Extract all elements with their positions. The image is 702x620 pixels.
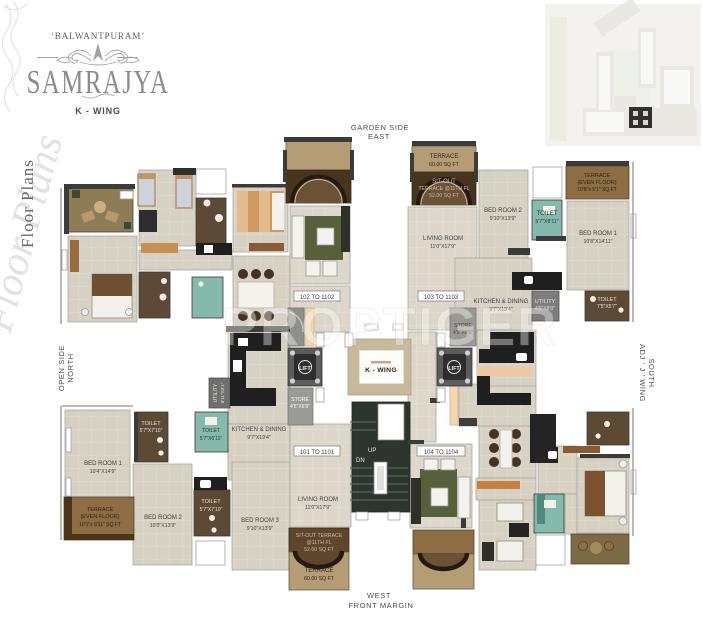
svg-text:9'7"X19'4": 9'7"X19'4": [247, 435, 271, 441]
svg-text:11'0"X17'9": 11'0"X17'9": [430, 244, 456, 250]
svg-text:60.00 SQ FT: 60.00 SQ FT: [429, 162, 460, 168]
svg-text:(EVEN FLOOR): (EVEN FLOOR): [577, 180, 616, 186]
svg-text:(EVEN FLOOR): (EVEN FLOOR): [80, 514, 119, 520]
svg-text:STORE: STORE: [291, 397, 309, 403]
svg-text:K - WING: K - WING: [75, 106, 120, 116]
svg-text:52.00 SQ FT: 52.00 SQ FT: [304, 547, 335, 553]
svg-text:BED ROOM 2: BED ROOM 2: [144, 515, 182, 521]
svg-text:TERRACE: TERRACE: [584, 173, 611, 179]
svg-text:SIT-OUT TERRACE: SIT-OUT TERRACE: [296, 533, 343, 539]
svg-text:TOILET: TOILET: [537, 211, 558, 217]
svg-text:SIT-OUT: SIT-OUT: [432, 179, 456, 185]
svg-text:‘BALWANTPURAM’: ‘BALWANTPURAM’: [51, 31, 145, 41]
svg-text:9'10"X13'9": 9'10"X13'9": [247, 526, 274, 532]
svg-text:UTILITY: UTILITY: [213, 383, 219, 402]
svg-text:52.00 SQ FT: 52.00 SQ FT: [429, 193, 460, 199]
svg-text:TERRACE @11TH FL: TERRACE @11TH FL: [418, 186, 469, 192]
svg-text:11'0"X17'9": 11'0"X17'9": [305, 505, 331, 511]
svg-text:104 TO 1104: 104 TO 1104: [424, 450, 459, 456]
svg-text:FRONT MARGIN: FRONT MARGIN: [349, 601, 414, 610]
svg-text:5'7"X7'10": 5'7"X7'10": [200, 507, 223, 513]
svg-text:SOUTH: SOUTH: [647, 358, 656, 387]
svg-text:K - WING: K - WING: [365, 367, 397, 374]
svg-text:5'7"X8'11": 5'7"X8'11": [535, 219, 558, 225]
svg-text:60.00 SQ FT: 60.00 SQ FT: [304, 576, 335, 582]
svg-text:NORTH: NORTH: [66, 353, 75, 383]
svg-text:5'7"X6'11": 5'7"X6'11": [200, 436, 223, 442]
svg-text:GARDEN SIDE: GARDEN SIDE: [351, 123, 409, 132]
svg-text:SAMRAJYA: SAMRAJYA: [27, 63, 170, 101]
svg-text:BED ROOM 3: BED ROOM 3: [241, 518, 279, 524]
svg-text:KITCHEN & DINING: KITCHEN & DINING: [232, 427, 287, 433]
svg-text:5'11"X3'1": 5'11"X3'1": [220, 382, 225, 403]
svg-text:101 TO 1101: 101 TO 1101: [300, 450, 335, 456]
svg-text:7'5"X5'7": 7'5"X5'7": [597, 304, 617, 310]
svg-text:BED ROOM 1: BED ROOM 1: [579, 231, 617, 237]
svg-text:LIVING ROOM: LIVING ROOM: [298, 497, 338, 503]
svg-text:TOILET: TOILET: [202, 428, 221, 434]
svg-text:5'7"X7'10": 5'7"X7'10": [140, 428, 163, 434]
svg-text:TOILET: TOILET: [141, 421, 161, 427]
svg-text:TERRACE: TERRACE: [305, 568, 334, 574]
svg-text:BED ROOM 1: BED ROOM 1: [84, 461, 122, 467]
svg-text:EAST: EAST: [368, 132, 390, 141]
svg-text:TOILET: TOILET: [597, 297, 617, 303]
svg-text:TOILET: TOILET: [201, 499, 221, 505]
svg-text:WEST: WEST: [367, 591, 391, 600]
svg-text:9'10"X13'9": 9'10"X13'9": [490, 216, 517, 222]
svg-text:4'5"X6'9": 4'5"X6'9": [290, 404, 310, 410]
svg-text:10'4"X14'9": 10'4"X14'9": [90, 469, 117, 475]
svg-text:10'0"X13'9": 10'0"X13'9": [150, 523, 177, 529]
svg-text:UP: UP: [368, 448, 376, 454]
svg-text:10'8"X14'11": 10'8"X14'11": [584, 239, 613, 245]
svg-text:DN: DN: [356, 458, 365, 464]
svg-text:@11TH FL: @11TH FL: [306, 540, 331, 546]
svg-text:ADJ ‘ J ’ WING: ADJ ‘ J ’ WING: [638, 344, 647, 402]
svg-text:TERRACE: TERRACE: [87, 507, 114, 513]
svg-text:LIVING ROOM: LIVING ROOM: [423, 236, 463, 242]
svg-text:BED ROOM 2: BED ROOM 2: [484, 208, 522, 214]
svg-text:LIFT: LIFT: [299, 366, 311, 372]
svg-text:LIFT: LIFT: [448, 366, 460, 372]
svg-text:10'8"x 5'1" SQ.FT: 10'8"x 5'1" SQ.FT: [577, 187, 616, 193]
svg-text:OPEN SIDE: OPEN SIDE: [57, 345, 66, 391]
svg-text:Floor Plans: Floor Plans: [18, 159, 37, 248]
svg-text:PROPTIGER: PROPTIGER: [222, 297, 558, 357]
svg-text:10'1"x 6'11" SQ.FT: 10'1"x 6'11" SQ.FT: [79, 522, 121, 528]
svg-text:TERRACE: TERRACE: [430, 154, 459, 160]
